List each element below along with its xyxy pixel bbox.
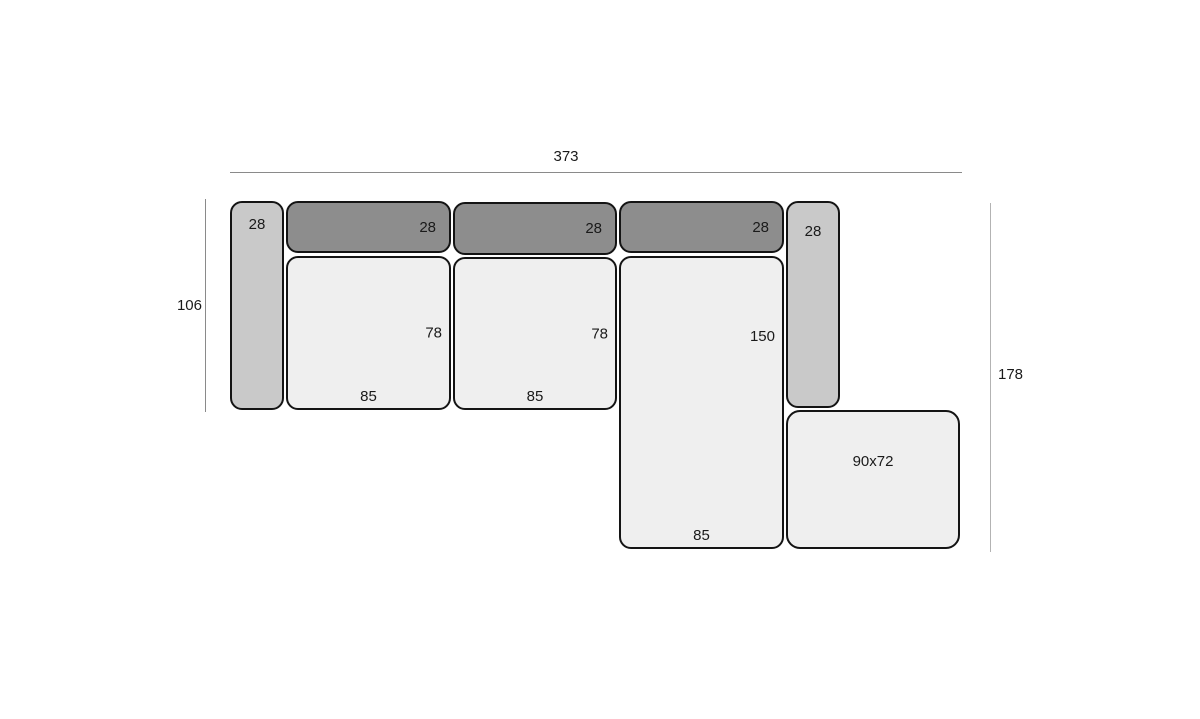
- dimension-line-left-depth: [205, 199, 206, 412]
- chaise-width-label: 85: [621, 527, 782, 544]
- seat-1-width-label: 85: [288, 388, 449, 405]
- backrest-3: 28: [619, 201, 784, 253]
- left-armrest: 28: [230, 201, 284, 410]
- right-armrest-width-label: 28: [805, 223, 822, 240]
- dimension-line-right-depth: [990, 203, 991, 552]
- backrest-2: 28: [453, 202, 617, 255]
- seat-1-depth-label: 78: [425, 325, 442, 342]
- right-armrest: 28: [786, 201, 840, 408]
- dimension-label-left-depth: 106: [160, 297, 202, 315]
- backrest-1: 28: [286, 201, 451, 253]
- backrest-3-width-label: 28: [752, 219, 769, 236]
- chaise: 150 85: [619, 256, 784, 549]
- seat-2-width-label: 85: [455, 388, 615, 405]
- backrest-2-width-label: 28: [585, 220, 602, 237]
- chaise-depth-label: 150: [750, 328, 775, 345]
- dimension-line-total-width: [230, 172, 962, 173]
- ottoman: 90x72: [786, 410, 960, 549]
- ottoman-size-label: 90x72: [853, 453, 894, 470]
- seat-1: 78 85: [286, 256, 451, 410]
- backrest-1-width-label: 28: [419, 219, 436, 236]
- seat-2-depth-label: 78: [591, 325, 608, 342]
- seat-2: 78 85: [453, 257, 617, 410]
- dimension-label-total-width: 373: [536, 148, 596, 166]
- dimension-label-right-depth: 178: [998, 366, 1023, 384]
- sofa-dimension-diagram: 373 106 178 28 28 28 28 28 78 85 78 85 1…: [0, 0, 1200, 719]
- left-armrest-width-label: 28: [249, 216, 266, 233]
